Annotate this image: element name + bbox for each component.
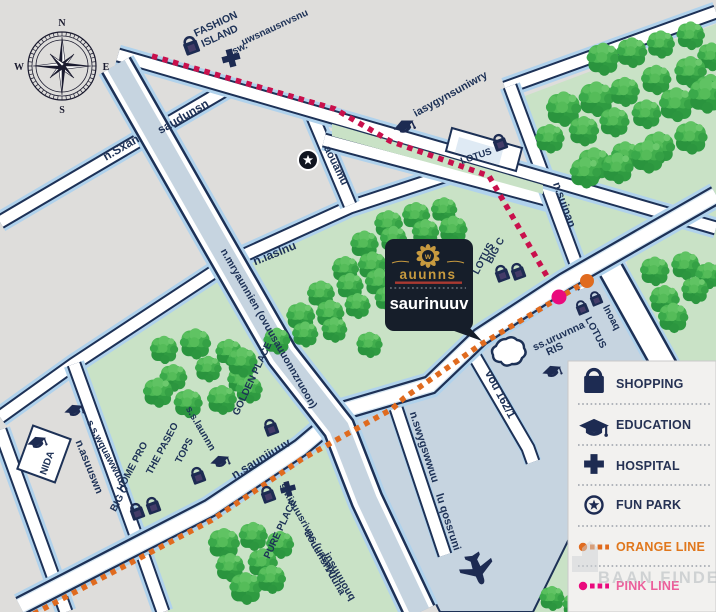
svg-text:E: E [103,62,110,73]
svg-text:N: N [58,18,66,29]
svg-text:ORANGE LINE: ORANGE LINE [616,540,705,554]
svg-text:BAAN FINDER: BAAN FINDER [598,569,716,587]
svg-text:w: w [424,252,432,261]
svg-text:FUN PARK: FUN PARK [616,498,681,512]
svg-text:SHOPPING: SHOPPING [616,377,684,391]
svg-text:EDUCATION: EDUCATION [616,418,691,432]
svg-text:auunns: auunns [399,267,456,282]
svg-text:W: W [14,62,24,73]
svg-text:S: S [59,105,65,116]
svg-text:saurinuuv: saurinuuv [390,295,470,313]
svg-text:HOSPITAL: HOSPITAL [616,459,680,473]
